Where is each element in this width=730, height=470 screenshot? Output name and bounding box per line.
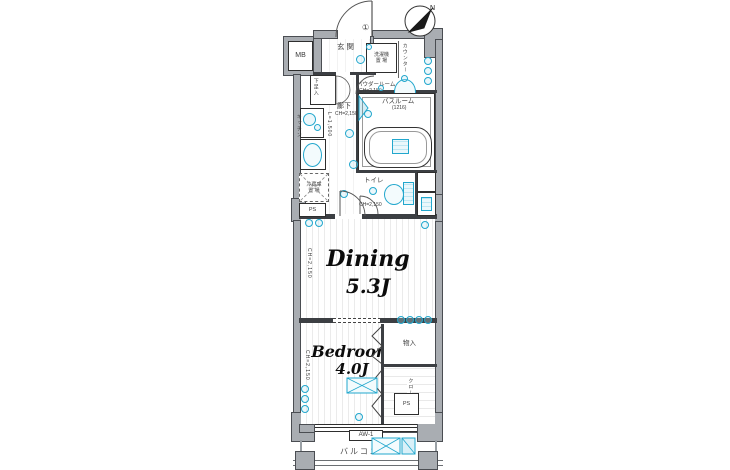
basin-faucet-icon bbox=[401, 75, 408, 82]
utility-outlet-icon bbox=[424, 67, 432, 75]
fridge-label: 冷蔵庫 置 場 bbox=[306, 182, 321, 194]
bedroom-switch-icon bbox=[415, 316, 423, 324]
balcony-pillar-left bbox=[295, 451, 315, 470]
sliding-door-track-lower bbox=[333, 322, 381, 324]
dining-size: 5.3J bbox=[318, 274, 418, 298]
wall-bottom-left-stub bbox=[299, 424, 315, 433]
entrance-light-icon bbox=[356, 55, 365, 64]
storage-space: 物入 bbox=[384, 324, 435, 364]
meter-box: MB bbox=[288, 41, 313, 71]
toilet-ch-label: CH=2,150 bbox=[359, 203, 382, 209]
bedroom-switch-icon bbox=[397, 316, 405, 324]
toilet-light-icon bbox=[369, 187, 377, 195]
kitchen-sink-icon bbox=[303, 143, 322, 167]
corridor-light-icon bbox=[340, 190, 348, 198]
wall-top-left bbox=[313, 30, 338, 39]
corridor-light-icon bbox=[349, 160, 358, 169]
toilet-label: トイレ bbox=[364, 177, 384, 184]
ps-lower-label: PS bbox=[403, 401, 410, 407]
kitchen-length-label: L=1,500 bbox=[325, 112, 331, 150]
compass-n-label: N bbox=[430, 5, 435, 12]
entrance-label: 玄関 bbox=[337, 43, 356, 52]
entry-door-tag: ① bbox=[362, 23, 369, 32]
dining-switch-icon bbox=[305, 219, 313, 227]
wall-top-right bbox=[372, 30, 429, 39]
utility-outlet-icon bbox=[424, 57, 432, 65]
stove-knob-icon bbox=[314, 124, 321, 131]
wall-right bbox=[435, 39, 443, 416]
corridor-ch-label: CH=2,150 bbox=[335, 112, 358, 118]
bedroom-outlet-icon bbox=[301, 405, 309, 413]
kitchen-label: キッチン bbox=[295, 114, 301, 154]
toilet-bowl-icon bbox=[384, 184, 404, 205]
shower-icon bbox=[364, 110, 372, 118]
sliding-door-track-upper bbox=[333, 318, 381, 320]
paper-holder-icon bbox=[421, 197, 432, 211]
storage-label: 物入 bbox=[403, 340, 416, 347]
tub-drain-icon bbox=[392, 139, 409, 154]
dining-outlet-icon bbox=[421, 221, 429, 229]
counter-label: カウンター bbox=[401, 43, 407, 77]
outdoor-unit-small-cross bbox=[402, 438, 415, 454]
outdoor-unit-small-icon bbox=[402, 438, 415, 454]
balcony-label: バルコニー bbox=[340, 447, 390, 456]
utility-outlet-icon bbox=[424, 77, 432, 85]
balcony-pillar-right bbox=[418, 451, 438, 470]
wall-dining-bedroom-a bbox=[299, 318, 333, 323]
laundry-label: 洗濯機 置 場 bbox=[374, 52, 389, 65]
laundry-tap-icon bbox=[366, 44, 372, 50]
corridor-light-icon bbox=[345, 129, 354, 138]
corridor-label: 廊下 bbox=[337, 103, 351, 111]
bedroom-outlet-icon bbox=[301, 395, 309, 403]
dining-name: Dining bbox=[318, 246, 418, 272]
powder-switch-icon bbox=[378, 85, 384, 91]
floor-plan-page: MB キッチン L=1,500 冷蔵庫 置 場 PS bbox=[0, 0, 730, 470]
window-tag-label: AW-1 bbox=[359, 432, 374, 439]
bedroom-outlet-icon bbox=[355, 413, 363, 421]
bedroom-switch-icon bbox=[424, 316, 432, 324]
ps-upper-label: PS bbox=[309, 207, 316, 213]
window-tag: AW-1 bbox=[349, 430, 383, 441]
toilet-side-shelf-upper bbox=[417, 172, 436, 192]
toilet-tank-icon bbox=[403, 182, 414, 205]
mb-label: MB bbox=[295, 52, 306, 60]
fridge-space: 冷蔵庫 置 場 bbox=[299, 173, 329, 202]
bathroom-size-label: (1216) bbox=[392, 106, 406, 112]
counter-strip: カウンター bbox=[398, 41, 411, 78]
bedroom-outlet-icon bbox=[301, 385, 309, 393]
dining-ch-label: CH=2,150 bbox=[305, 248, 311, 308]
bedroom-switch-icon bbox=[406, 316, 414, 324]
pipe-space-upper: PS bbox=[299, 203, 326, 217]
dining-switch-icon bbox=[315, 219, 323, 227]
shoe-cabinet-label: 下足入 bbox=[312, 78, 318, 104]
bedroom-window-midline bbox=[315, 427, 417, 428]
pipe-space-lower: PS bbox=[394, 393, 419, 415]
